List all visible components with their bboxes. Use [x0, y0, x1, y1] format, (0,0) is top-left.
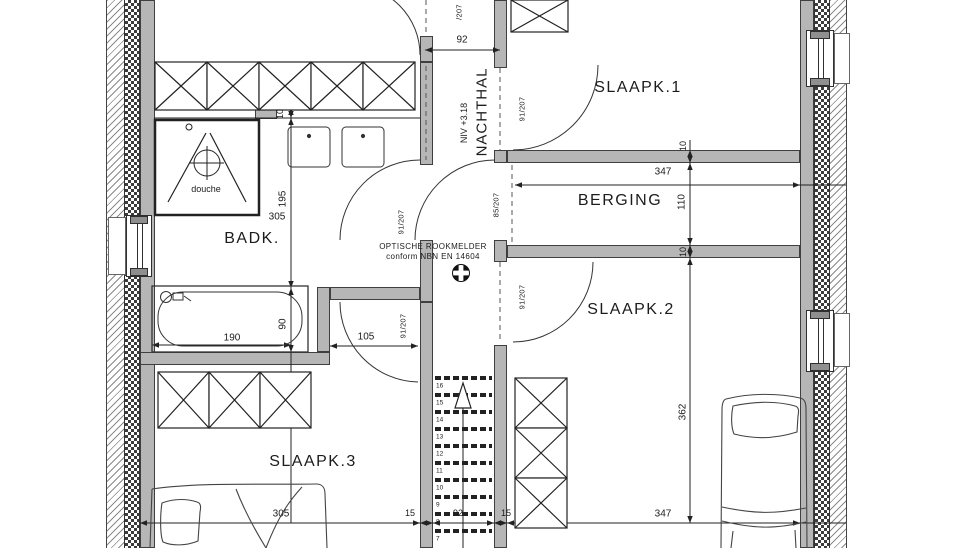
dim-stair-width: 92	[453, 508, 463, 518]
bed-slaapk3	[150, 484, 327, 548]
bed-slaapk2	[721, 394, 807, 548]
door-label-top: /207	[455, 4, 464, 20]
door-label-slaapk1: 91/207	[518, 97, 527, 122]
dim-stair-right: 15	[501, 508, 511, 518]
dim-slaapk2-width: 347	[655, 509, 672, 520]
stair-step-number: 12	[436, 451, 443, 458]
room-label-slaapk2: SLAAPK.2	[587, 301, 675, 319]
dim-badk-door: 105	[358, 332, 375, 343]
stair-step-number: 9	[436, 502, 440, 509]
stair-step-number: 14	[436, 417, 443, 424]
door-arc-berging	[415, 160, 495, 240]
dim-badk-b: 305	[269, 212, 286, 223]
door-label-berging: 85/207	[492, 193, 501, 218]
closets	[155, 0, 568, 528]
floor-plan: SLAAPK.1 BERGING SLAAPK.2 SLAAPK.3 BADK.…	[0, 0, 972, 548]
level-note: NIV +3.18	[459, 103, 469, 143]
door-label-slaapk2: 91/207	[518, 285, 527, 310]
smoke-note-line2: conform NBN EN 14604	[379, 252, 487, 262]
door-arc-top-room	[350, 0, 420, 55]
room-label-slaapk1: SLAAPK.1	[594, 79, 682, 97]
dashed-guides	[426, 0, 512, 342]
stair-step-number: 15	[436, 400, 443, 407]
room-label-nachthal: NACHTHAL	[474, 68, 491, 157]
smoke-detector-icon	[452, 264, 471, 283]
door-arcs	[340, 0, 598, 382]
room-label-badk: BADK.	[224, 230, 280, 248]
dim-bath-length: 190	[224, 333, 241, 344]
dim-slaapk2-depth: 362	[678, 404, 689, 421]
dim-badk-a: 195	[278, 191, 289, 208]
dim-bath-width: 90	[278, 318, 289, 329]
dim-berging-width: 347	[655, 167, 672, 178]
stair-step-number: 10	[436, 485, 443, 492]
shower	[155, 120, 259, 215]
dim-vanity: 10	[275, 109, 285, 119]
dim-slaapk3-width: 305	[273, 509, 290, 520]
dim-wall-top: 10	[678, 141, 688, 151]
room-label-berging: BERGING	[578, 192, 662, 210]
smoke-detector-note: OPTISCHE ROOKMELDER conform NBN EN 14604	[379, 242, 487, 262]
dim-wall-mid: 10	[678, 247, 688, 257]
door-label-slaapk3: 91/207	[399, 314, 408, 339]
stair-step-number: 8	[436, 519, 440, 526]
wash-basins	[288, 127, 384, 167]
dim-corridor-top: 92	[456, 35, 467, 46]
room-label-slaapk3: SLAAPK.3	[269, 453, 357, 471]
room-label-douche: douche	[191, 184, 221, 194]
stair-step-number: 13	[436, 434, 443, 441]
dim-berging-depth: 110	[677, 194, 688, 210]
stair-step-number: 7	[436, 536, 440, 543]
stair-step-number: 11	[436, 468, 443, 475]
door-label-badk: 91/207	[397, 210, 406, 235]
door-arc-badk	[340, 160, 420, 240]
dim-stair-left: 15	[405, 508, 415, 518]
stair-step-number: 16	[436, 383, 443, 390]
smoke-note-line1: OPTISCHE ROOKMELDER	[379, 242, 487, 252]
